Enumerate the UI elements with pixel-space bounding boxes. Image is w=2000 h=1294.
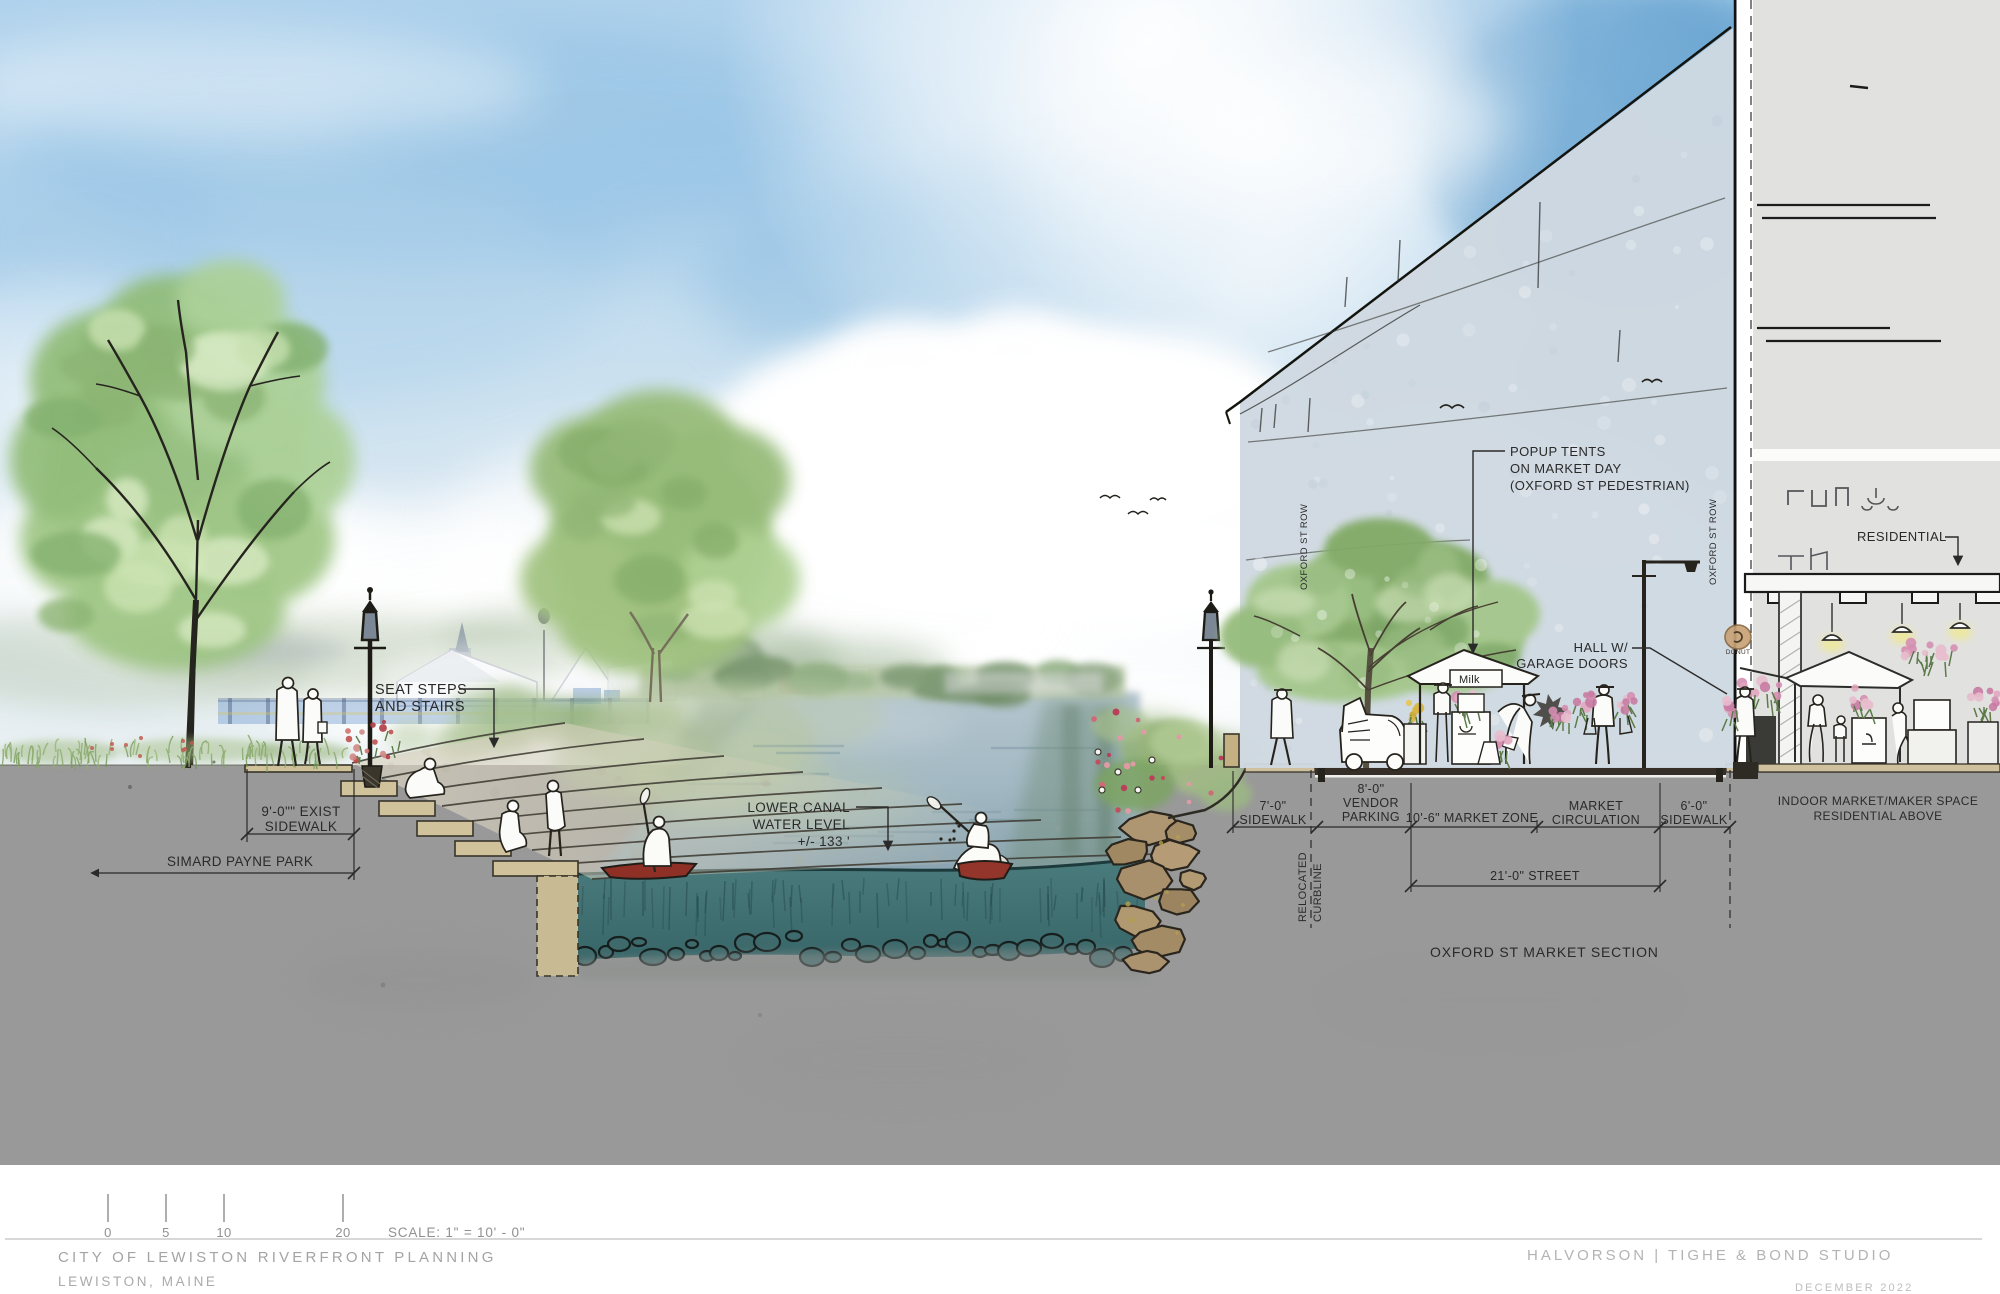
svg-text:RESIDENTIAL: RESIDENTIAL <box>1857 529 1947 544</box>
svg-text:CIRCULATION: CIRCULATION <box>1552 813 1640 827</box>
svg-text:20: 20 <box>335 1225 350 1240</box>
svg-text:CITY OF LEWISTON RIVERFRONT PL: CITY OF LEWISTON RIVERFRONT PLANNING <box>58 1249 497 1266</box>
svg-text:MARKET: MARKET <box>1569 799 1624 813</box>
svg-text:+/- 133 ': +/- 133 ' <box>798 834 850 849</box>
svg-text:LEWISTON, MAINE: LEWISTON, MAINE <box>58 1274 218 1289</box>
svg-text:SIMARD PAYNE PARK: SIMARD PAYNE PARK <box>167 854 313 869</box>
svg-text:VENDOR: VENDOR <box>1343 796 1399 810</box>
svg-text:6'-0": 6'-0" <box>1681 799 1708 813</box>
svg-text:(OXFORD ST PEDESTRIAN): (OXFORD ST PEDESTRIAN) <box>1510 478 1690 493</box>
svg-text:0: 0 <box>104 1225 112 1240</box>
svg-text:SCALE: 1" = 10' - 0": SCALE: 1" = 10' - 0" <box>388 1225 525 1240</box>
svg-text:21'-0" STREET: 21'-0" STREET <box>1490 869 1580 883</box>
svg-text:AND STAIRS: AND STAIRS <box>375 699 465 715</box>
svg-text:DECEMBER 2022: DECEMBER 2022 <box>1795 1282 1913 1294</box>
svg-text:LOWER CANAL: LOWER CANAL <box>747 800 850 815</box>
svg-text:SIDEWALK: SIDEWALK <box>265 819 337 834</box>
svg-text:10: 10 <box>216 1225 231 1240</box>
svg-text:SEAT STEPS: SEAT STEPS <box>375 682 467 698</box>
svg-text:WATER LEVEL: WATER LEVEL <box>753 817 851 832</box>
svg-text:HALVORSON | TIGHE & BOND STUDI: HALVORSON | TIGHE & BOND STUDIO <box>1527 1247 1893 1264</box>
svg-text:DONUT: DONUT <box>1726 649 1751 656</box>
svg-text:ON MARKET DAY: ON MARKET DAY <box>1510 461 1622 476</box>
svg-text:OXFORD ST ROW: OXFORD ST ROW <box>1299 504 1310 590</box>
svg-text:INDOOR MARKET/MAKER SPACE: INDOOR MARKET/MAKER SPACE <box>1778 794 1978 808</box>
svg-text:7'-0": 7'-0" <box>1260 799 1287 813</box>
svg-text:8'-0": 8'-0" <box>1358 782 1385 796</box>
svg-text:HALL W/: HALL W/ <box>1574 640 1628 655</box>
svg-text:OXFORD ST ROW: OXFORD ST ROW <box>1708 499 1719 585</box>
svg-text:POPUP TENTS: POPUP TENTS <box>1510 444 1606 459</box>
svg-text:10'-6" MARKET ZONE: 10'-6" MARKET ZONE <box>1406 811 1539 825</box>
svg-text:CURBLINE: CURBLINE <box>1312 863 1324 922</box>
svg-text:GARAGE DOORS: GARAGE DOORS <box>1516 656 1628 671</box>
svg-text:RESIDENTIAL ABOVE: RESIDENTIAL ABOVE <box>1813 809 1942 823</box>
svg-text:5: 5 <box>162 1225 170 1240</box>
svg-text:Milk: Milk <box>1459 674 1480 686</box>
svg-text:SIDEWALK: SIDEWALK <box>1239 813 1307 827</box>
svg-text:RELOCATED: RELOCATED <box>1297 852 1309 922</box>
svg-text:SIDEWALK: SIDEWALK <box>1660 813 1728 827</box>
svg-text:PARKING: PARKING <box>1342 810 1400 824</box>
svg-text:9'-0"" EXIST: 9'-0"" EXIST <box>261 804 340 819</box>
svg-text:OXFORD ST MARKET SECTION: OXFORD ST MARKET SECTION <box>1430 944 1659 960</box>
